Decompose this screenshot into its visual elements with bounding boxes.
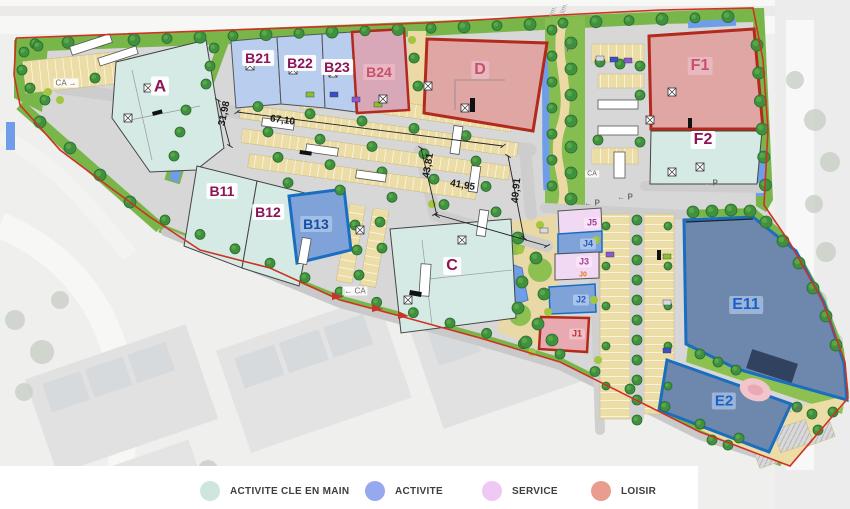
plot-label-F1[interactable]: F1 [688,57,713,75]
plot-shape-B21[interactable] [231,37,281,108]
plot-label-A[interactable]: A [151,77,169,96]
plot-label-J2[interactable]: J2 [573,295,589,306]
plot-shape-D[interactable] [424,39,547,131]
parking-sign-5: ← P [785,406,801,415]
legend-item-service: SERVICE [482,481,558,501]
plot-label-B22[interactable]: B22 [284,55,316,71]
plot-label-B13[interactable]: B13 [300,216,332,232]
plot-shape-F1[interactable] [649,29,763,129]
parking-sign-1: P [566,45,571,54]
plot-label-F2[interactable]: F2 [691,131,716,149]
plot-label-J3[interactable]: J3 [576,257,592,268]
legend-label-loisir: LOISIR [621,486,656,497]
legend-dot-service [482,481,502,501]
plot-label-J1[interactable]: J1 [569,329,585,340]
legend-item-activite: ACTIVITE [365,481,443,501]
plot-label-B23[interactable]: B23 [321,59,353,75]
parking-sign-3: ← P [617,193,633,202]
plot-label-B11[interactable]: B11 [207,183,238,199]
site-plan-map: A B21 B22 B23 B24 B11 B12 B13 C D F1 F2 … [0,0,850,509]
plot-label-C[interactable]: C [443,257,461,275]
plot-label-E2[interactable]: E2 [712,393,736,410]
plot-label-D[interactable]: D [471,61,489,79]
plot-label-E11[interactable]: E11 [729,296,763,314]
legend-item-loisir: LOISIR [591,481,656,501]
plot-shape-B22[interactable] [277,34,325,108]
road-label-ca-1: CA → [54,79,79,88]
legend-dot-activite-cle-en-main [200,481,220,501]
legend-dot-activite [365,481,385,501]
plot-label-B21[interactable]: B21 [242,50,274,66]
legend-label-activite-cle-en-main: ACTIVITE CLE EN MAIN [230,486,349,497]
parking-sign-2: ← P [702,179,718,188]
road-label-ca-3: CA [585,171,599,178]
legend-label-service: SERVICE [512,486,558,497]
legend-label-activite: ACTIVITE [395,486,443,497]
plot-label-B12[interactable]: B12 [252,204,284,220]
plot-shape-C[interactable] [390,219,516,333]
plot-label-J4[interactable]: J4 [580,239,596,250]
plot-label-J0[interactable]: J0 [576,271,590,280]
site-plan-canvas [0,0,850,509]
parking-sign-4: ← P [584,199,600,208]
plot-label-B24[interactable]: B24 [363,64,395,80]
legend-item-activite-cle-en-main: ACTIVITE CLE EN MAIN [200,481,349,501]
legend-dot-loisir [591,481,611,501]
road-label-ca-2: ← CA [342,287,367,296]
plot-label-J5[interactable]: J5 [584,218,600,229]
